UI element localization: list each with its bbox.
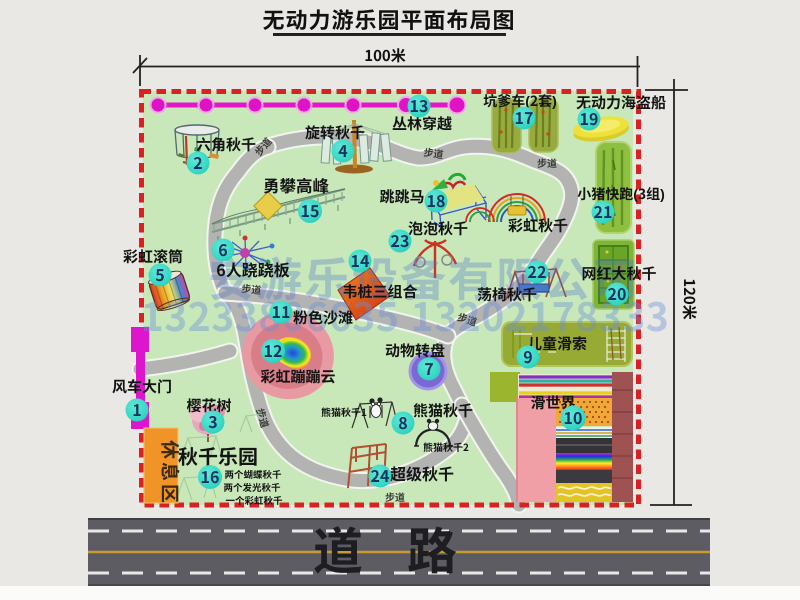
svg-text:两个蝴蝶秋千: 两个蝴蝶秋千 [224,467,282,481]
svg-text:步道: 步道 [385,489,405,504]
svg-text:1: 1 [132,397,141,421]
svg-text:勇攀高峰: 勇攀高峰 [263,173,330,197]
svg-text:6: 6 [218,237,227,261]
svg-text:路: 路 [407,512,457,584]
svg-text:23: 23 [391,228,410,252]
svg-text:11: 11 [272,299,291,323]
svg-text:六角秋千: 六角秋千 [196,134,256,155]
svg-text:超级秋千: 超级秋千 [390,461,454,485]
svg-text:熊猫秋千: 熊猫秋千 [413,400,473,421]
svg-text:14: 14 [351,248,370,272]
svg-text:16: 16 [201,464,220,488]
svg-text:动物转盘: 动物转盘 [385,340,445,361]
svg-text:旋转秋千: 旋转秋千 [305,122,365,143]
svg-text:120米: 120米 [679,278,700,320]
svg-text:7: 7 [424,356,433,380]
svg-text:无动力游乐园平面布局图: 无动力游乐园平面布局图 [262,3,515,35]
svg-text:24: 24 [371,463,390,487]
svg-text:步道: 步道 [537,155,557,170]
svg-text:12: 12 [264,338,283,362]
svg-text:8: 8 [398,410,407,434]
svg-text:18: 18 [427,188,446,212]
svg-text:步道: 步道 [423,144,445,162]
svg-text:15: 15 [301,198,320,222]
svg-text:道: 道 [313,512,363,584]
svg-text:5: 5 [155,262,164,286]
svg-text:2: 2 [193,150,202,174]
svg-text:彩虹蹦蹦云: 彩虹蹦蹦云 [260,366,335,387]
svg-text:一个彩虹秋千: 一个彩虹秋千 [225,493,283,507]
svg-text:17: 17 [515,105,534,129]
svg-text:彩虹滚筒: 彩虹滚筒 [123,246,183,267]
svg-text:9: 9 [523,344,532,368]
svg-text:跳跳马: 跳跳马 [379,186,424,207]
svg-text:熊猫秋千1: 熊猫秋千1 [321,404,367,419]
svg-text:彩虹秋千: 彩虹秋千 [508,215,568,236]
svg-text:泡泡秋千: 泡泡秋千 [408,218,468,239]
svg-text:21: 21 [594,199,613,223]
svg-text:10: 10 [564,405,583,429]
svg-text:19: 19 [580,106,599,130]
svg-text:22: 22 [528,259,547,283]
svg-text:3: 3 [208,409,217,433]
svg-text:粉色沙滩: 粉色沙滩 [293,307,353,328]
svg-text:4: 4 [338,138,347,162]
svg-text:100米: 100米 [364,45,406,66]
svg-text:两个发光秋千: 两个发光秋千 [223,480,281,494]
svg-text:13: 13 [410,93,429,117]
svg-text:熊猫秋千2: 熊猫秋千2 [423,439,469,454]
svg-text:风车大门: 风车大门 [112,376,172,397]
svg-text:20: 20 [608,281,627,305]
svg-text:小猪快跑(3组): 小猪快跑(3组) [577,184,665,204]
svg-text:荡椅秋千: 荡椅秋千 [477,284,537,305]
svg-text:韦桩三组合: 韦桩三组合 [342,281,417,302]
